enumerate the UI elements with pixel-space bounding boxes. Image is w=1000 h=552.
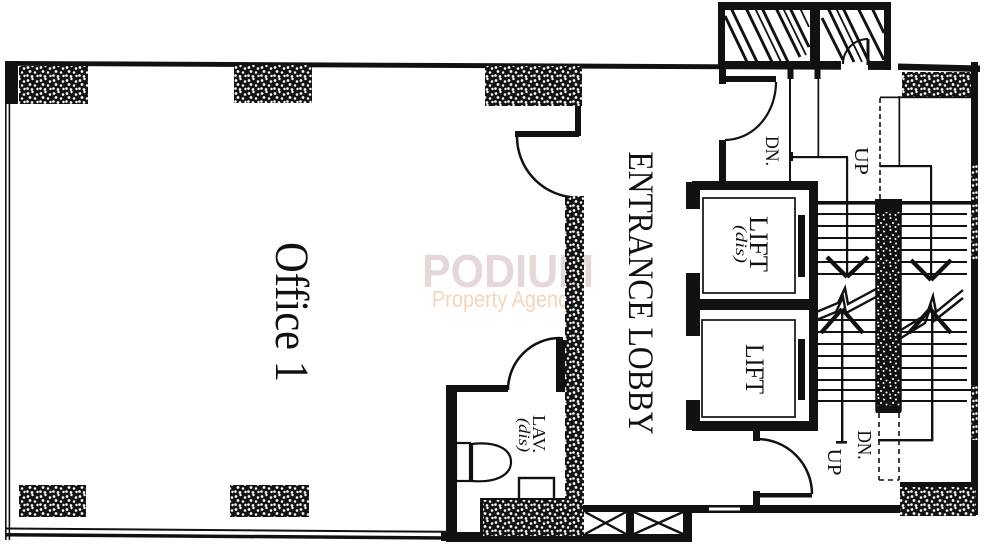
- svg-text:(dis): (dis): [515, 418, 532, 452]
- svg-text:Property Agency: Property Agency: [432, 286, 578, 312]
- svg-text:UP: UP: [823, 449, 845, 476]
- svg-text:ENTRANCE LOBBY: ENTRANCE LOBBY: [621, 152, 661, 435]
- svg-text:DN.: DN.: [853, 431, 875, 460]
- svg-text:Office 1: Office 1: [265, 242, 318, 382]
- svg-text:UP: UP: [850, 147, 872, 175]
- svg-text:(dis): (dis): [732, 225, 749, 263]
- svg-text:DN.: DN.: [761, 136, 782, 166]
- svg-text:LIFT: LIFT: [740, 344, 769, 394]
